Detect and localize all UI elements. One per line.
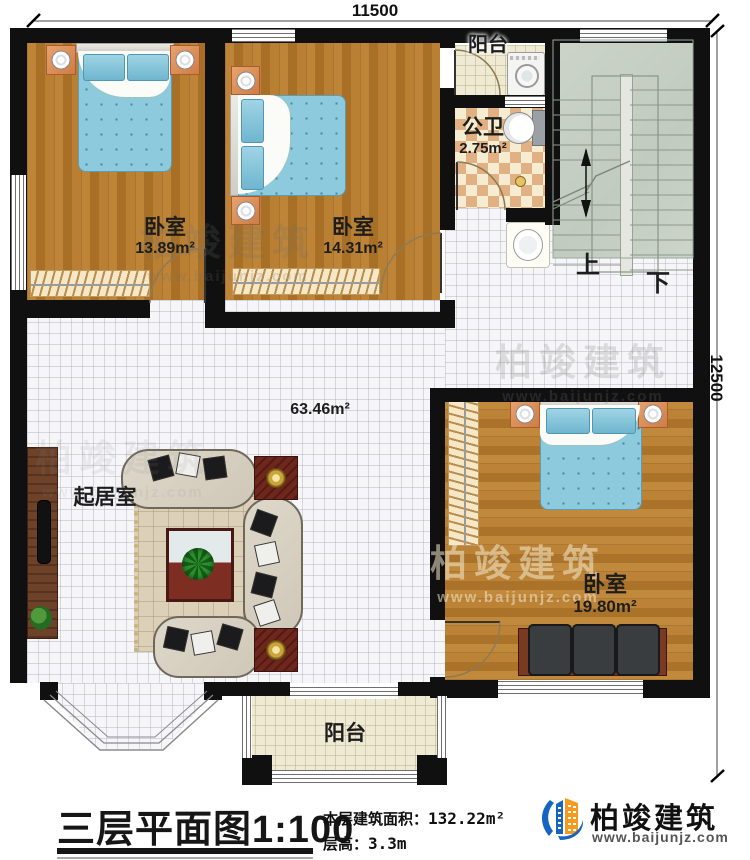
balcony-bottom-label: 阳台: [314, 722, 376, 746]
plan-title-text: 三层平面图: [57, 809, 252, 851]
window-top-bed2: [232, 29, 295, 42]
wall-left: [10, 28, 27, 683]
side-table-bottom: [254, 628, 298, 672]
wall-bed3-top: [445, 388, 693, 402]
stair-center-rail: [620, 74, 633, 276]
balcony-post-left: [242, 755, 272, 785]
lamp-icon: [52, 51, 71, 70]
room-name: 公卫: [446, 116, 520, 140]
lamp-icon: [236, 201, 255, 220]
lamp-icon: [516, 404, 535, 423]
wardrobe-rail: [31, 284, 149, 286]
room-area: 13.89m²: [105, 240, 225, 258]
bed1-nightstand-right: [170, 45, 200, 75]
bed3-nightstand-right: [638, 399, 668, 428]
bed2-pillow: [241, 99, 264, 143]
lamp-icon: [266, 640, 286, 660]
room-name: 起居室: [60, 486, 150, 510]
bay-corner-left: [40, 682, 58, 700]
lamp-icon: [266, 468, 286, 488]
brand-logo-icon: [538, 794, 586, 840]
lamp-icon: [644, 404, 663, 423]
dimension-top: 11500: [335, 1, 415, 21]
bedroom1-label: 卧室 13.89m²: [105, 216, 225, 259]
washing-machine: [507, 52, 545, 96]
window-top-stairs: [580, 29, 667, 42]
bathroom-faucet-icon: [515, 176, 526, 187]
floor-height-value: 3.3m: [368, 834, 407, 853]
sofa-pillow: [163, 626, 189, 652]
washer-door-icon: [515, 64, 539, 88]
bed1-pillow: [127, 54, 169, 81]
coffee-table-plant: [182, 548, 214, 580]
bed3-bench-cushion: [572, 624, 616, 676]
room-area: 2.75m²: [446, 140, 520, 157]
bed3-pillow: [592, 408, 636, 434]
window-bed3-bottom: [498, 681, 643, 697]
wardrobe-rail: [464, 401, 466, 545]
bed3-nightstand-left: [510, 399, 540, 428]
bed3-bench-cushion: [616, 624, 660, 676]
bedroom2-label: 卧室 14.31m²: [298, 216, 408, 259]
room-name: 卧室: [560, 572, 650, 597]
wall-bath-bottom-stub: [506, 208, 545, 222]
wall-balcony-left-seg: [210, 682, 290, 696]
wall-living-bed3-a: [430, 388, 445, 620]
floor-height-label: 层高：: [323, 836, 368, 853]
dimension-right: 12500: [706, 338, 726, 418]
title-underline: [57, 848, 313, 854]
bed1-wardrobe: [30, 270, 150, 297]
wall-bed2-bottom: [205, 312, 455, 328]
window-left-bed1: [11, 175, 26, 290]
room-area: 19.80m²: [560, 597, 650, 617]
wall-bed2-right-c: [440, 300, 455, 312]
hallway-sink: [513, 229, 543, 261]
stairs-up-label: 上: [572, 252, 604, 280]
tv: [37, 500, 51, 564]
plant-small: [30, 606, 52, 630]
wall-bed3-bottom-b: [643, 680, 710, 698]
bed2-nightstand-top: [231, 66, 260, 95]
window-balcony-washer: [505, 96, 545, 107]
wall-balcony-right-seg: [398, 682, 447, 696]
floor-area-line: 本层建筑面积：132.22m²: [323, 808, 505, 829]
wall-bath-stairs: [545, 28, 560, 225]
stairs-down-label: 下: [642, 270, 674, 298]
lamp-icon: [236, 71, 255, 90]
balcony-post-right: [417, 755, 447, 785]
bathroom-label: 公卫 2.75m²: [446, 116, 520, 157]
sofa-pillow: [203, 456, 228, 481]
balcony-rail-bottom: [272, 770, 417, 784]
sliding-door-balcony-bottom: [290, 687, 398, 699]
title-underline-thin: [57, 857, 313, 859]
wall-bed1-bottom: [10, 300, 150, 318]
wardrobe-rail: [233, 282, 379, 284]
floor-plan-canvas: 柏竣建筑 www.baijunjz.com 柏竣建筑 www.baijunjz.…: [0, 0, 750, 860]
bay-window-floor: [40, 683, 222, 751]
bed3-bench-cushion: [528, 624, 572, 676]
room-name: 卧室: [298, 216, 408, 240]
room-name: 阳台: [456, 34, 520, 57]
brand-url: www.baijunjz.com: [592, 829, 729, 845]
living-room-area-label: 63.46m²: [276, 401, 364, 419]
wall-bed1-bed2: [205, 28, 225, 312]
bed1-pillow: [83, 54, 125, 81]
plan-title: 三层平面图1:100: [57, 798, 354, 853]
sofa-pillow: [254, 541, 280, 567]
balcony-top-label: 阳台: [456, 34, 520, 57]
sofa-pillow: [190, 630, 215, 655]
bed3-wardrobe: [448, 400, 479, 546]
room-area: 63.46m²: [276, 401, 364, 419]
bed2-pillow: [241, 146, 264, 190]
sofa-pillow: [175, 452, 200, 477]
lamp-icon: [176, 51, 195, 70]
bedroom3-label: 卧室 19.80m²: [560, 572, 650, 617]
room-name: 阳台: [314, 722, 376, 746]
floor-area-value: 132.22m²: [428, 809, 505, 828]
bed2-nightstand-bottom: [231, 196, 260, 225]
balcony-rail-left: [242, 696, 252, 758]
wall-bed2-right-a: [440, 28, 455, 48]
living-room-label: 起居室: [60, 486, 150, 510]
bed3-pillow: [546, 408, 590, 434]
bed1-nightstand-left: [46, 45, 76, 75]
balcony-rail-right: [437, 696, 447, 758]
floor-area-label: 本层建筑面积：: [323, 811, 428, 828]
side-table-top: [254, 456, 298, 500]
bed2-wardrobe: [232, 268, 380, 295]
wall-bed2-right-b: [440, 88, 455, 230]
room-name: 卧室: [105, 216, 225, 240]
floor-height-line: 层高：3.3m: [323, 833, 407, 854]
room-area: 14.31m²: [298, 240, 408, 258]
